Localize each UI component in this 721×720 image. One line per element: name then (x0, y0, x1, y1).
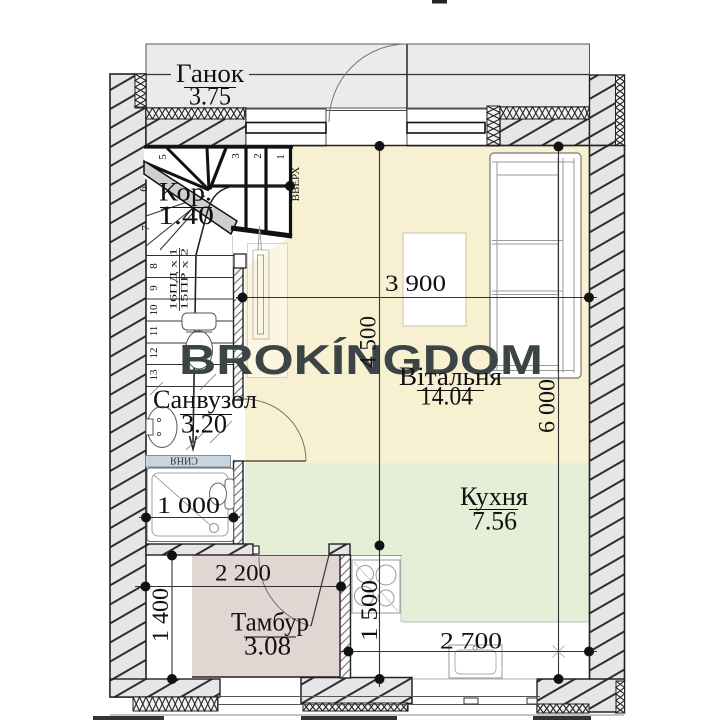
svg-text:16ПД х 1: 16ПД х 1 (169, 248, 179, 310)
svg-text:2: 2 (252, 153, 264, 159)
svg-text:1 500: 1 500 (357, 580, 383, 641)
svg-text:9: 9 (148, 285, 160, 291)
svg-text:1 400: 1 400 (148, 588, 174, 642)
svg-text:4 500: 4 500 (356, 316, 382, 368)
svg-text:7: 7 (140, 225, 152, 231)
svg-text:3.20: 3.20 (181, 410, 227, 439)
svg-text:15ПР х 2: 15ПР х 2 (180, 248, 190, 310)
svg-text:3: 3 (230, 153, 242, 159)
svg-text:13: 13 (148, 369, 160, 381)
svg-text:1.40: 1.40 (158, 201, 214, 230)
svg-text:СИНЯ: СИНЯ (170, 455, 198, 466)
svg-text:3.75: 3.75 (189, 82, 231, 111)
svg-text:ВВЕРХ: ВВЕРХ (290, 167, 302, 202)
svg-text:6: 6 (138, 186, 150, 192)
svg-text:14.04: 14.04 (420, 382, 473, 411)
svg-text:5: 5 (157, 154, 169, 160)
svg-text:7.56: 7.56 (472, 507, 517, 536)
svg-text:8: 8 (148, 263, 160, 269)
svg-text:2 700: 2 700 (440, 629, 502, 655)
svg-text:1 000: 1 000 (157, 493, 220, 519)
svg-text:11: 11 (148, 326, 160, 337)
svg-text:10: 10 (148, 304, 160, 316)
svg-text:1: 1 (275, 154, 287, 160)
svg-text:3 900: 3 900 (385, 271, 446, 297)
svg-text:2 200: 2 200 (215, 561, 271, 587)
svg-text:3.08: 3.08 (244, 632, 291, 661)
svg-text:6 000: 6 000 (535, 379, 561, 433)
svg-text:12: 12 (148, 348, 160, 359)
